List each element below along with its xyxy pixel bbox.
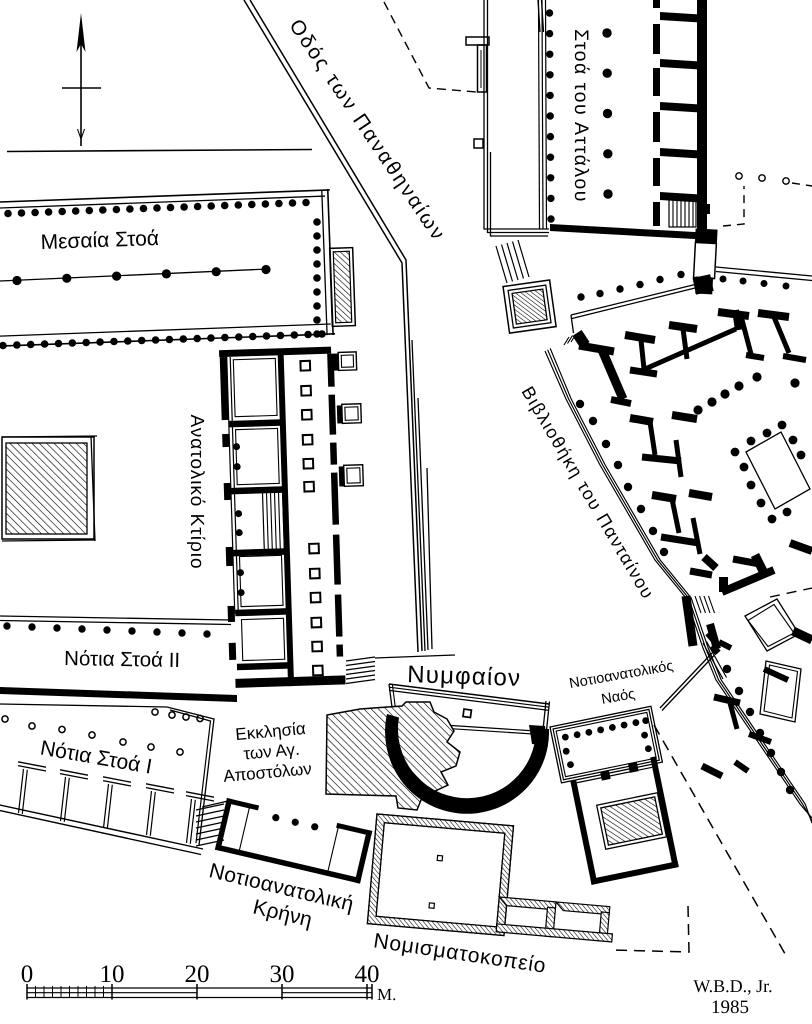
svg-text:W.B.D., Jr.: W.B.D., Jr.	[693, 976, 772, 996]
svg-text:Στοά του Αττάλου: Στοά του Αττάλου	[570, 29, 592, 203]
svg-text:M.: M.	[377, 985, 396, 1004]
svg-text:10: 10	[100, 961, 125, 988]
svg-text:0: 0	[21, 961, 34, 988]
svg-text:40: 40	[355, 961, 380, 988]
svg-text:Νότια Στοά II: Νότια Στοά II	[64, 647, 180, 672]
svg-text:30: 30	[270, 961, 295, 988]
svg-text:Νυμφαίον: Νυμφαίον	[407, 661, 522, 692]
svg-text:20: 20	[185, 961, 210, 988]
svg-text:Ανατολικό Κτίριο: Ανατολικό Κτίριο	[186, 414, 207, 569]
svg-text:Μεσαία Στοά: Μεσαία Στοά	[40, 227, 159, 254]
svg-text:1985: 1985	[711, 997, 749, 1018]
